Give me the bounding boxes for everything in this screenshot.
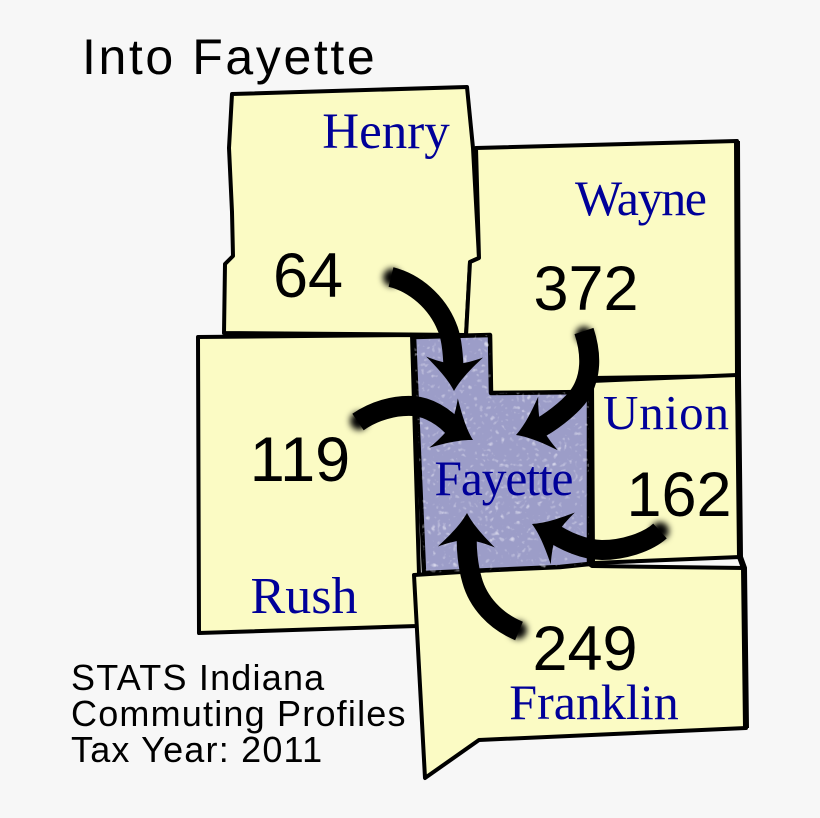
svg-text:Commuting Profiles: Commuting Profiles bbox=[71, 693, 407, 734]
svg-text:249: 249 bbox=[532, 614, 637, 684]
svg-text:162: 162 bbox=[626, 460, 731, 530]
svg-text:Tax Year: 2011: Tax Year: 2011 bbox=[71, 729, 323, 770]
svg-text:Into Fayette: Into Fayette bbox=[82, 29, 377, 85]
svg-text:Rush: Rush bbox=[251, 568, 358, 625]
svg-text:Henry: Henry bbox=[322, 104, 450, 160]
svg-text:372: 372 bbox=[533, 254, 638, 324]
svg-text:64: 64 bbox=[273, 241, 343, 311]
svg-text:Fayette: Fayette bbox=[435, 451, 574, 506]
svg-text:Union: Union bbox=[603, 385, 729, 440]
svg-text:STATS Indiana: STATS Indiana bbox=[71, 657, 325, 698]
svg-text:119: 119 bbox=[250, 425, 350, 495]
svg-text:Wayne: Wayne bbox=[575, 170, 707, 226]
